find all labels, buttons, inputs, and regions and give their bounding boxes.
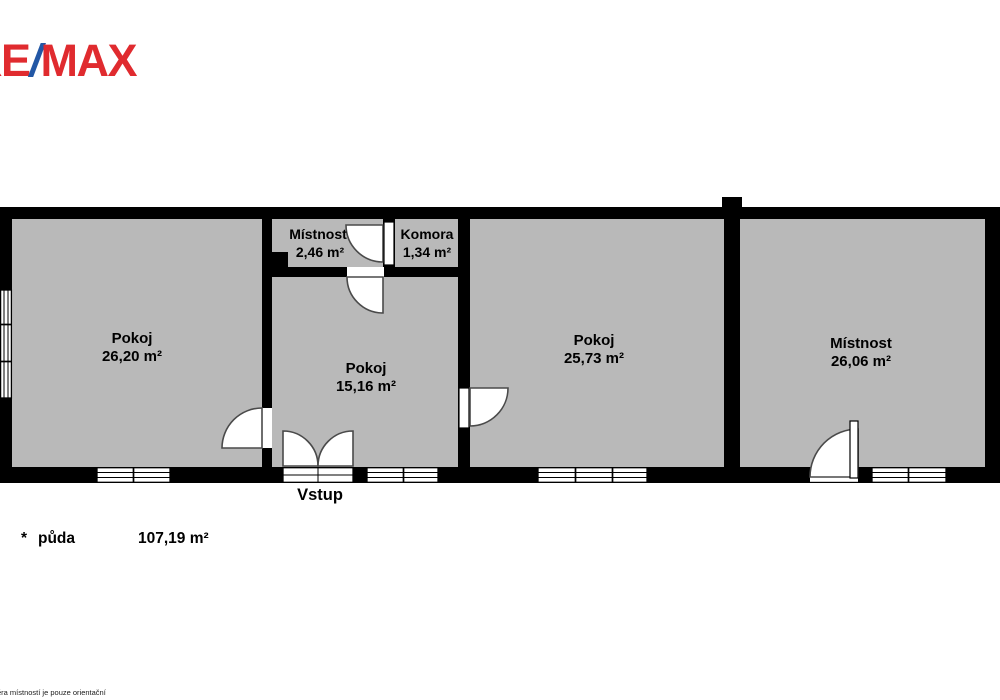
room-area-mistnost-small: 2,46 m² bbox=[296, 244, 345, 260]
wall-right bbox=[985, 207, 1000, 483]
floorplan-canvas: RE/MAX bbox=[0, 0, 1000, 700]
footnote: * půda 107,19 m² bbox=[21, 530, 209, 547]
room-area-mistnost-big: 26,06 m² bbox=[831, 353, 891, 370]
footnote-label: půda bbox=[38, 530, 75, 547]
logo-max: MAX bbox=[41, 35, 138, 86]
room-name-komora: Komora bbox=[401, 226, 454, 242]
entrance-label: Vstup bbox=[297, 486, 343, 504]
floor-plan: Pokoj 26,20 m² Místnost 2,46 m² Komora 1… bbox=[0, 197, 1000, 504]
footnote-asterisk: * bbox=[21, 530, 28, 547]
room-area-pokoj-left: 26,20 m² bbox=[102, 348, 162, 365]
remax-logo: RE/MAX bbox=[0, 35, 138, 86]
room-name-mistnost-small: Místnost bbox=[289, 226, 347, 242]
remax-logo-text: RE/MAX bbox=[0, 35, 138, 86]
logo-re: RE bbox=[0, 35, 30, 86]
wall-top bbox=[0, 207, 1000, 219]
wall-pokoj-right-divider bbox=[458, 219, 470, 467]
wall-stub bbox=[272, 252, 288, 267]
room-area-pokoj-middle: 15,16 m² bbox=[336, 378, 396, 395]
room-name-pokoj-right: Pokoj bbox=[574, 332, 615, 349]
room-name-mistnost-big: Místnost bbox=[830, 335, 892, 352]
wall-mistnost-big-divider bbox=[724, 219, 740, 467]
window-bottom-4 bbox=[872, 468, 946, 483]
window-bottom-3 bbox=[538, 468, 647, 483]
disclaimer-text: ěra místností je pouze orientační bbox=[0, 688, 107, 697]
room-area-komora: 1,34 m² bbox=[403, 244, 452, 260]
room-name-pokoj-middle: Pokoj bbox=[346, 360, 387, 377]
window-left-wall bbox=[0, 290, 12, 398]
chimney-mark bbox=[722, 197, 742, 207]
room-name-pokoj-left: Pokoj bbox=[112, 330, 153, 347]
footnote-area: 107,19 m² bbox=[138, 530, 209, 547]
window-bottom-1 bbox=[97, 468, 170, 483]
room-area-pokoj-right: 25,73 m² bbox=[564, 350, 624, 367]
window-bottom-2 bbox=[367, 468, 438, 483]
